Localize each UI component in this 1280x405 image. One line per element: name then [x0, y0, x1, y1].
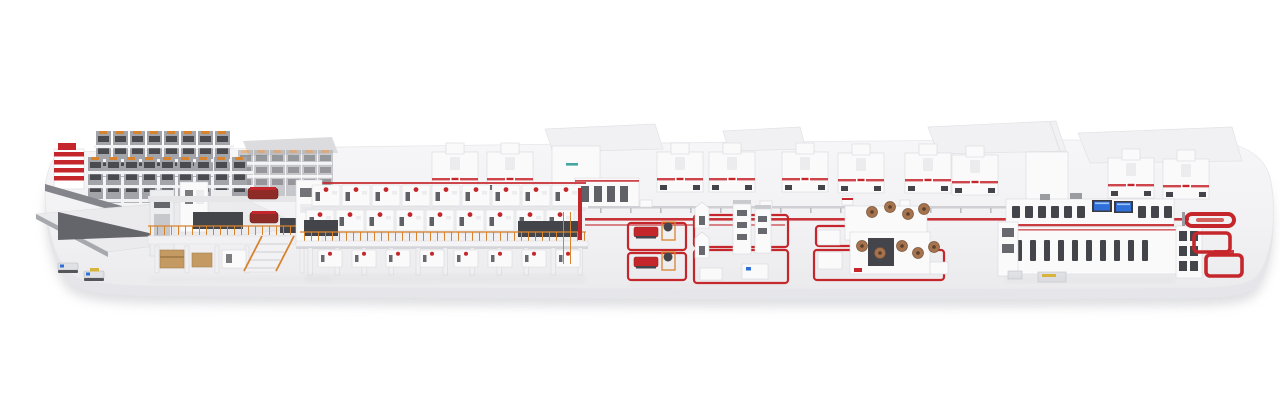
corrugator-drum-lower	[250, 211, 278, 223]
red-ladder	[578, 188, 582, 240]
under-deck-cabinet	[222, 250, 246, 268]
red-striped-tower	[54, 143, 84, 189]
dry-end-machine	[998, 193, 1202, 282]
deck-fascia	[296, 241, 588, 247]
dry-end-scaffold	[560, 212, 576, 264]
main-corrugator-line	[296, 180, 588, 275]
lower-body	[1002, 227, 1178, 274]
print-unit-lower	[850, 232, 940, 274]
production-line-scene	[0, 0, 1280, 405]
floor-unit-with-screen	[742, 264, 768, 279]
walkway-railing	[300, 232, 586, 241]
factory-render-canvas	[0, 0, 1280, 405]
floor-unit	[700, 268, 722, 280]
end-tower-left	[998, 222, 1018, 276]
corrugator-drum-upper	[248, 187, 278, 199]
upper-cabinet-row	[312, 185, 580, 208]
